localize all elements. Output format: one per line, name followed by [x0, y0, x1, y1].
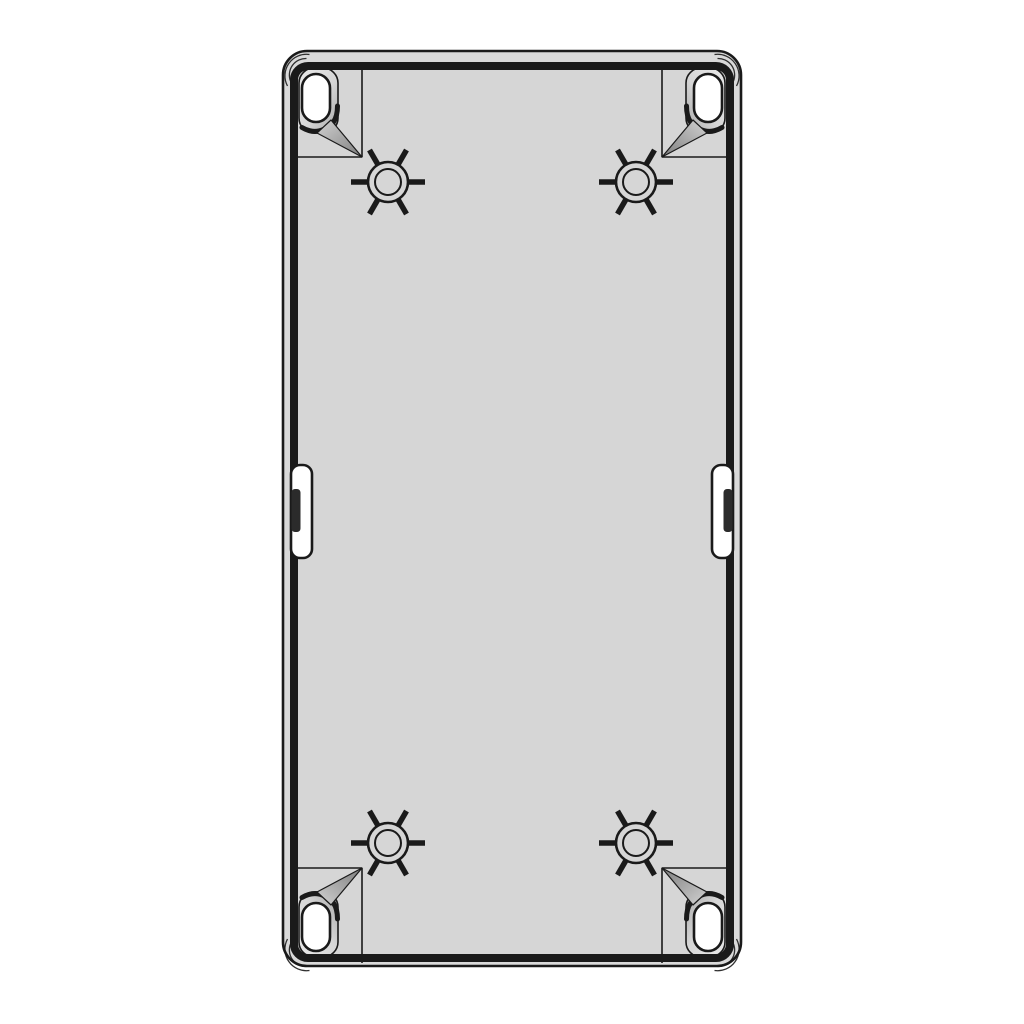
- enclosure-inner-panel: [297, 68, 727, 957]
- enclosure-technical-drawing: [0, 0, 1024, 1024]
- side-latch-tab-left: [291, 465, 312, 558]
- side-latch-tab-right: [712, 465, 733, 558]
